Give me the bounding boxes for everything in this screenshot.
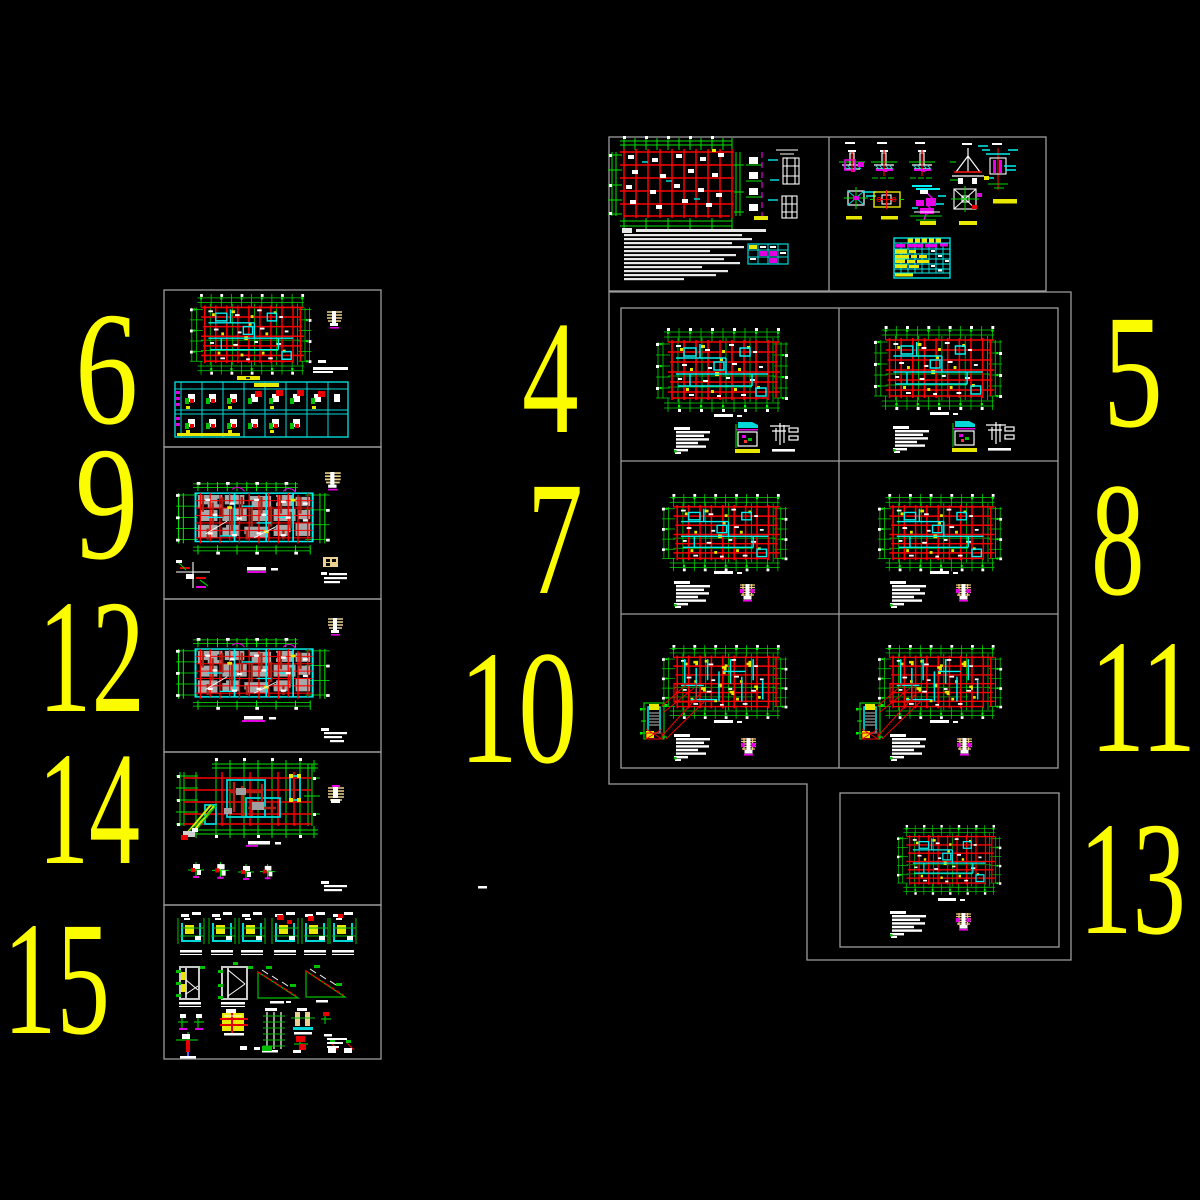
svg-text:4: 4 xyxy=(522,288,579,468)
svg-text:13: 13 xyxy=(1079,789,1186,968)
svg-text:8: 8 xyxy=(1091,450,1144,629)
svg-text:10: 10 xyxy=(459,618,577,797)
svg-text:11: 11 xyxy=(1090,607,1196,786)
svg-text:15: 15 xyxy=(3,889,110,1068)
svg-text:5: 5 xyxy=(1103,282,1163,462)
svg-text:7: 7 xyxy=(527,450,583,629)
svg-text:14: 14 xyxy=(38,719,140,898)
